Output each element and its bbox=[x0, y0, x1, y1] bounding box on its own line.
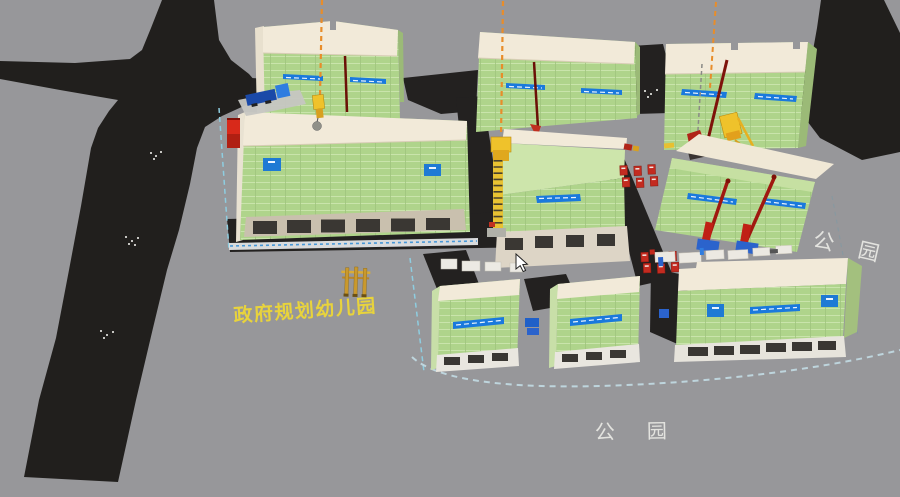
building-bottom-right[interactable] bbox=[674, 258, 862, 362]
park-label-bottom: 公 园 bbox=[595, 419, 673, 444]
building-bottom-left[interactable] bbox=[431, 279, 520, 372]
crane-cab bbox=[491, 137, 511, 152]
roof-notch bbox=[793, 40, 800, 49]
building-left-middle[interactable] bbox=[236, 112, 470, 242]
crane-hook-ball bbox=[313, 122, 322, 131]
scene-svg[interactable]: 政府规划幼儿园 公 园 公 园 bbox=[0, 0, 900, 497]
site-sign-small bbox=[659, 309, 669, 318]
roof-notch bbox=[330, 18, 336, 30]
roof-notch bbox=[731, 41, 738, 50]
gate-pillar bbox=[227, 118, 240, 148]
viewport-3d[interactable]: 政府规划幼儿园 公 园 公 园 bbox=[0, 0, 900, 497]
kindergarten-gate bbox=[340, 266, 370, 297]
crane-mast bbox=[493, 160, 503, 230]
waste-bin bbox=[525, 318, 539, 335]
building-bottom-center[interactable] bbox=[549, 276, 640, 369]
